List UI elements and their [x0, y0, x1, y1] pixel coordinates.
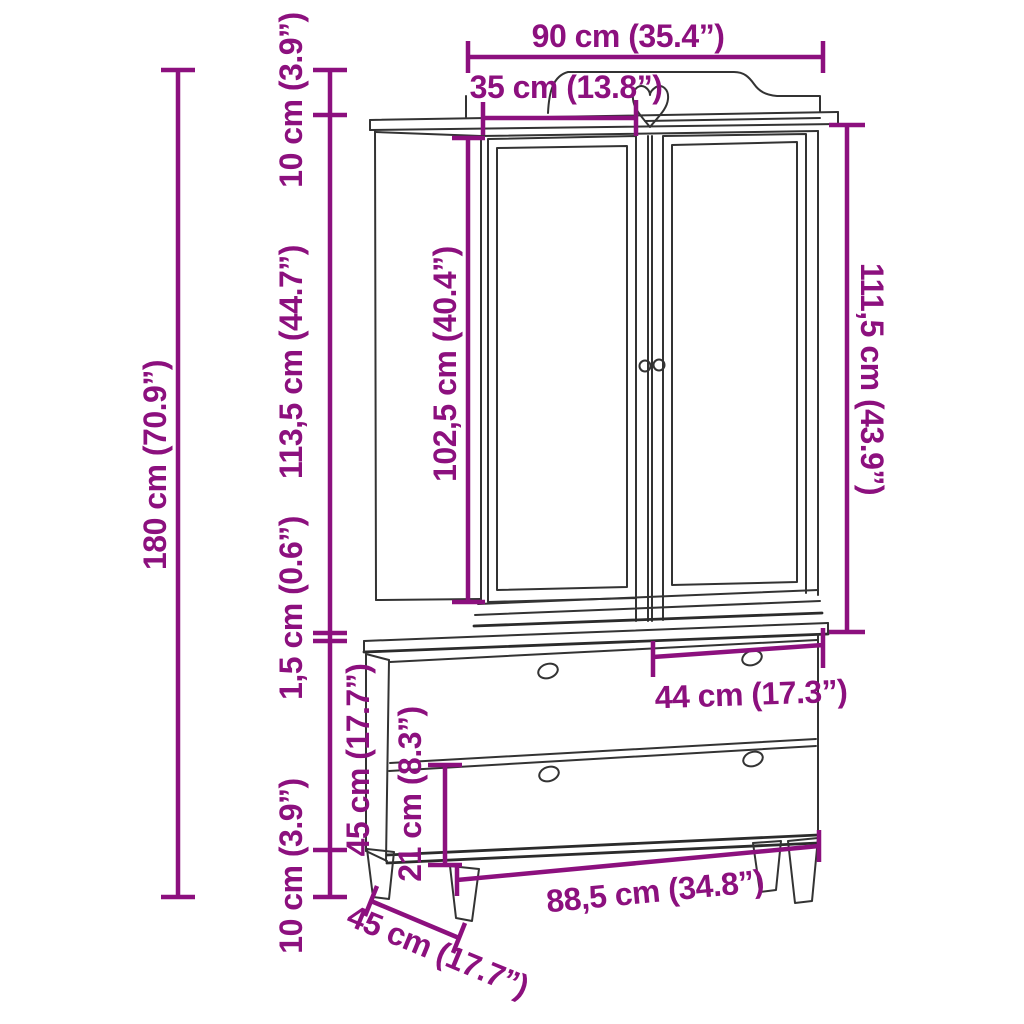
lower-top-edge	[364, 623, 828, 641]
upper-left-back-edge	[375, 130, 376, 600]
wardrobe-drawing	[364, 72, 838, 921]
lower-side-top	[366, 654, 389, 660]
upper-side-top-edge	[375, 132, 481, 136]
total-height-label: 180 cm (70.9”)	[137, 360, 173, 570]
dimension-labels: 90 cm (35.4”) 35 cm (13.8”) 10 cm (3.9”)…	[137, 12, 890, 1004]
drawer2-knob-left	[537, 764, 560, 783]
dimension-diagram: 90 cm (35.4”) 35 cm (13.8”) 10 cm (3.9”)…	[0, 0, 1024, 1024]
dim-drawer-front-height	[428, 765, 462, 865]
width-top-label: 90 cm (35.4”)	[532, 18, 725, 54]
drawer2-knob-right	[741, 749, 764, 768]
upper-body-height-label: 113,5 cm (44.7”)	[273, 245, 309, 479]
cornice-moulding	[645, 118, 820, 121]
depth-upper-label: 35 cm (13.8”)	[470, 69, 663, 105]
drawer1-knob-left	[536, 661, 559, 680]
dim-depth-upper	[483, 100, 636, 136]
right-door-panel	[672, 142, 797, 585]
dimension-lines	[161, 41, 865, 953]
door-gap-lines	[648, 136, 652, 621]
lower-unit-height-label: 45 cm (17.7”)	[340, 664, 376, 857]
depth-lower-label: 45 cm (17.7”)	[342, 897, 534, 1004]
left-door-outline	[488, 136, 636, 621]
lower-width-label: 88,5 cm (34.8”)	[545, 863, 766, 920]
diagram-canvas: 90 cm (35.4”) 35 cm (13.8”) 10 cm (3.9”)…	[0, 0, 1024, 1024]
lower-front-left-edge	[386, 660, 389, 861]
leg-height-label: 10 cm (3.9”)	[273, 778, 309, 953]
gap-height-label: 1,5 cm (0.6”)	[273, 516, 309, 700]
left-door-panel	[497, 146, 627, 590]
drawer-front-height-label: 21 cm (8.3”)	[392, 706, 428, 881]
drawer-knobs	[536, 648, 764, 783]
cornice-bottom-edge	[370, 124, 838, 130]
door-height-label: 102,5 cm (40.4”)	[427, 246, 463, 482]
leg-front-left	[450, 866, 479, 921]
crown-height-label: 10 cm (3.9”)	[273, 12, 309, 187]
drawer-width-label: 44 cm (17.3”)	[654, 673, 848, 716]
upper-right-height-label: 111,5 cm (43.9”)	[854, 263, 890, 495]
right-door-outline	[663, 134, 806, 620]
